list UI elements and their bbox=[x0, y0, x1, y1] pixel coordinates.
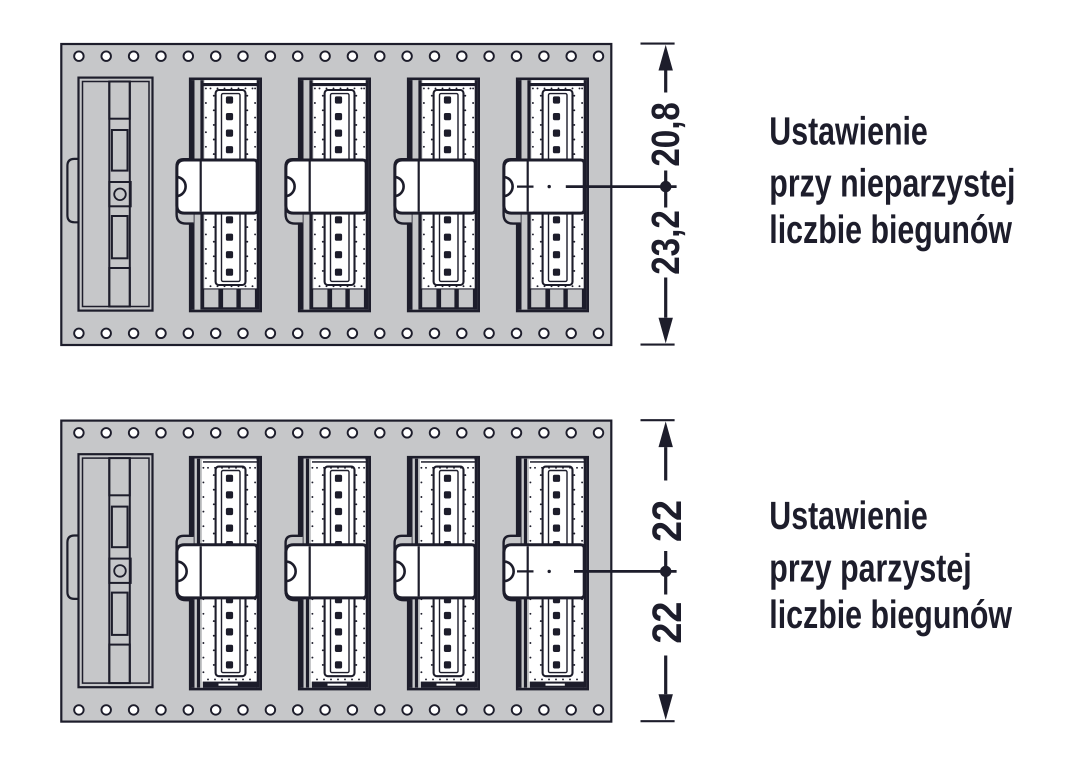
svg-text:23,2: 23,2 bbox=[644, 210, 688, 275]
svg-text:liczbie biegunów: liczbie biegunów bbox=[769, 593, 1012, 637]
svg-text:22: 22 bbox=[644, 602, 690, 644]
svg-text:22: 22 bbox=[644, 500, 690, 542]
svg-text:Ustawienie: Ustawienie bbox=[769, 110, 927, 154]
svg-text:20,8: 20,8 bbox=[644, 102, 688, 167]
svg-text:przy nieparzystej: przy nieparzystej bbox=[769, 162, 1015, 206]
svg-text:liczbie biegunów: liczbie biegunów bbox=[769, 208, 1012, 252]
svg-text:Ustawienie: Ustawienie bbox=[769, 494, 927, 538]
svg-text:przy parzystej: przy parzystej bbox=[769, 546, 971, 590]
